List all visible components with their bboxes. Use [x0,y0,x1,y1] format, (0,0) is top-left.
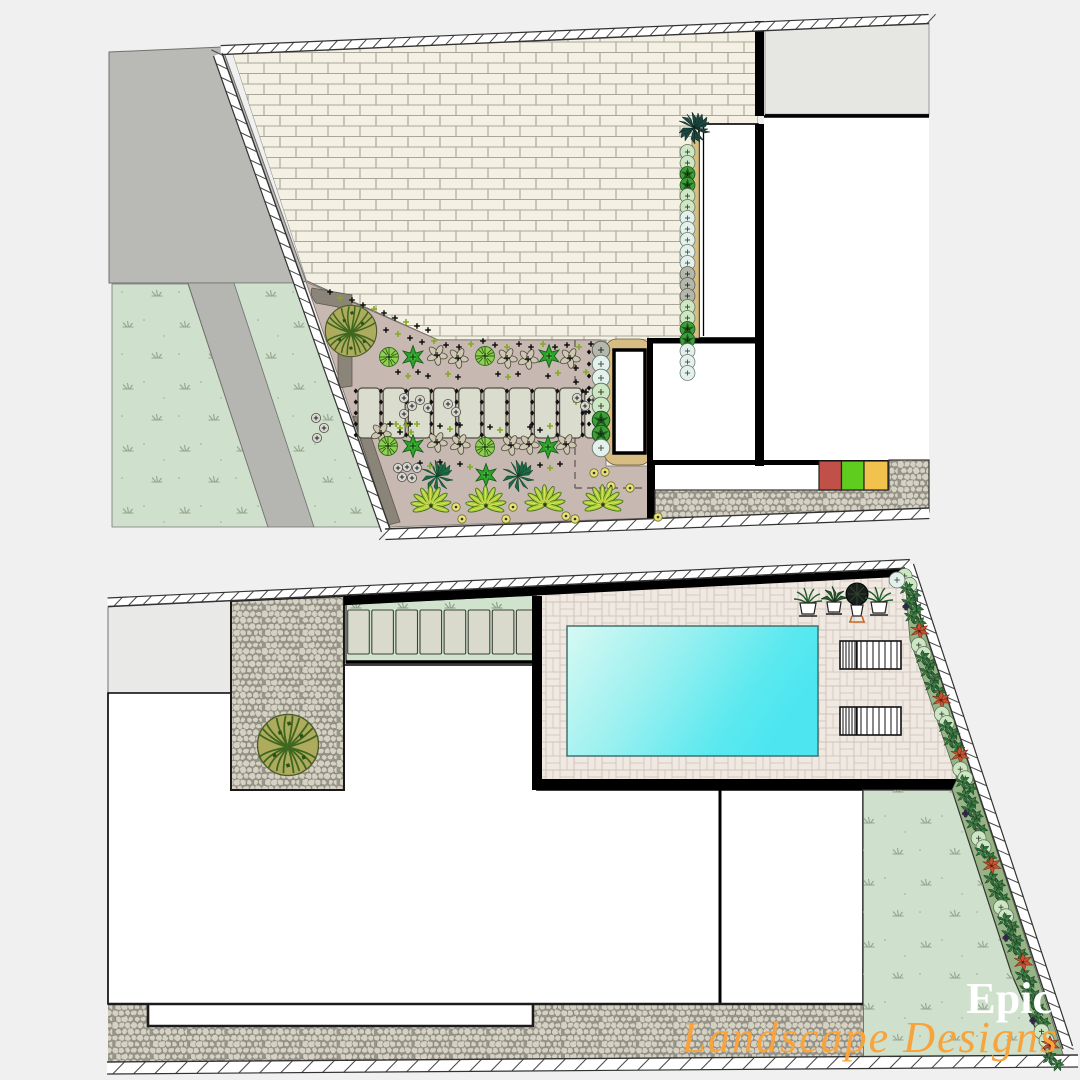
svg-text:Landscape Designs: Landscape Designs [681,1013,1059,1062]
